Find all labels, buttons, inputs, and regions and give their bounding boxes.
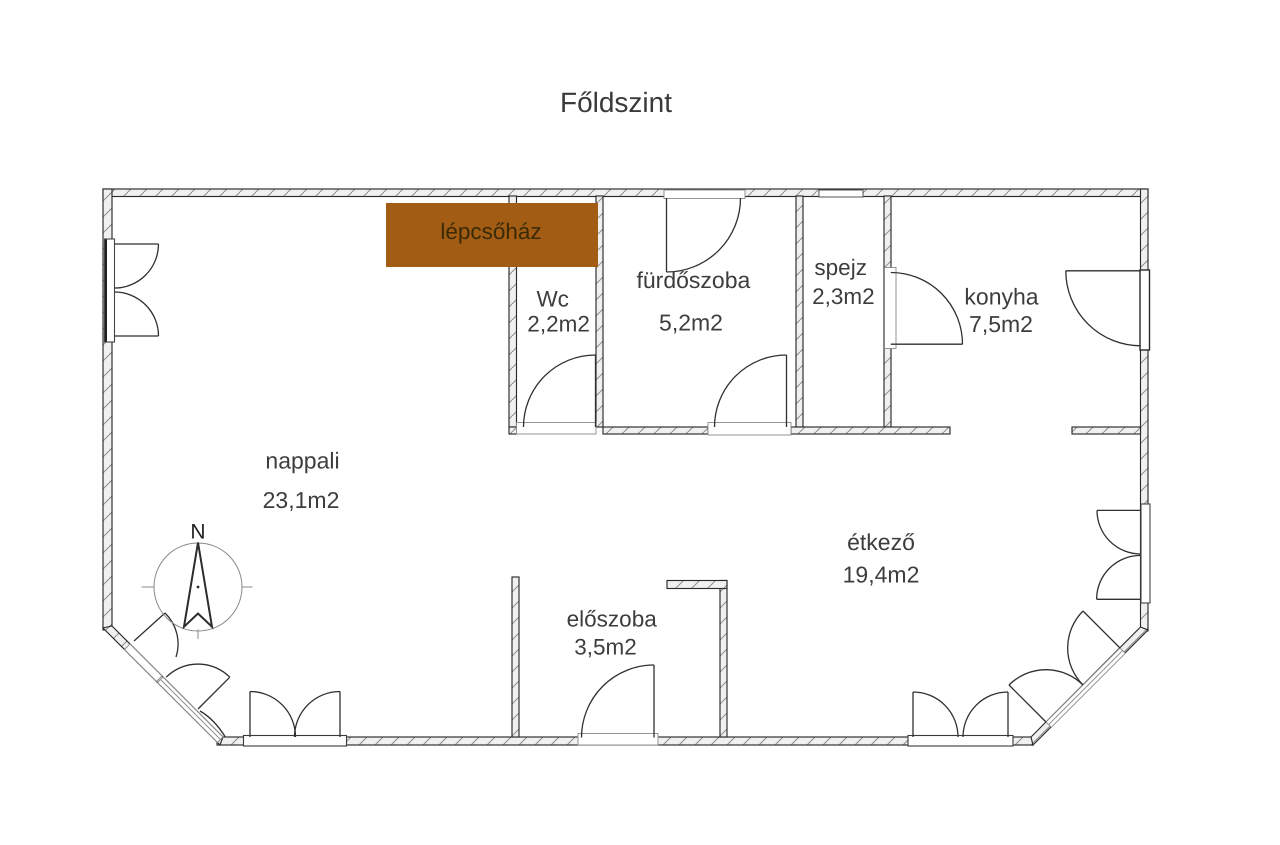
svg-text:N: N xyxy=(190,520,205,543)
svg-text:konyha: konyha xyxy=(964,283,1038,309)
svg-text:2,2m2: 2,2m2 xyxy=(527,311,590,336)
svg-text:19,4m2: 19,4m2 xyxy=(843,561,920,587)
svg-text:lépcsőház: lépcsőház xyxy=(440,219,541,244)
svg-text:fürdőszoba: fürdőszoba xyxy=(636,267,750,293)
svg-text:Wc: Wc xyxy=(536,286,569,311)
svg-text:spejz: spejz xyxy=(814,255,867,280)
svg-text:3,5m2: 3,5m2 xyxy=(574,634,637,659)
svg-text:Főldszint: Főldszint xyxy=(560,87,672,118)
svg-text:23,1m2: 23,1m2 xyxy=(263,487,340,513)
svg-text:étkező: étkező xyxy=(847,529,915,555)
svg-text:7,5m2: 7,5m2 xyxy=(969,311,1033,337)
svg-text:nappali: nappali xyxy=(265,447,339,473)
svg-text:5,2m2: 5,2m2 xyxy=(659,309,723,335)
svg-text:2,3m2: 2,3m2 xyxy=(812,284,875,309)
svg-text:előszoba: előszoba xyxy=(567,606,658,631)
